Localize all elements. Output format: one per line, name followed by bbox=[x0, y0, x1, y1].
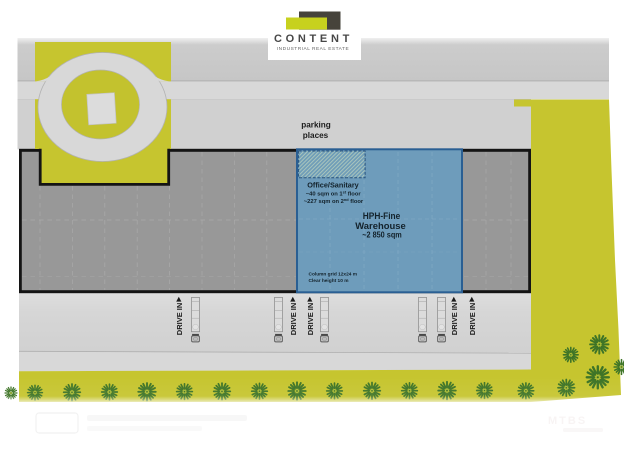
svg-text:MTBS: MTBS bbox=[548, 415, 587, 427]
svg-text:Clear height 10 m: Clear height 10 m bbox=[309, 278, 349, 284]
svg-text:DRIVE IN: DRIVE IN bbox=[175, 303, 184, 336]
svg-text:Office/Sanitary: Office/Sanitary bbox=[307, 181, 359, 190]
svg-text:CONTENT: CONTENT bbox=[274, 33, 353, 45]
svg-text:~2 850 sqm: ~2 850 sqm bbox=[362, 231, 402, 240]
svg-text:places: places bbox=[303, 131, 329, 140]
svg-text:parking: parking bbox=[301, 120, 331, 129]
svg-text:~40 sqm on 1st floor: ~40 sqm on 1st floor bbox=[306, 189, 362, 197]
svg-text:~227 sqm on 2nd floor: ~227 sqm on 2nd floor bbox=[304, 197, 364, 205]
svg-text:DRIVE IN: DRIVE IN bbox=[450, 303, 459, 336]
svg-text:DRIVE IN: DRIVE IN bbox=[289, 303, 298, 336]
svg-text:Column grid 12x24 m: Column grid 12x24 m bbox=[309, 271, 358, 277]
svg-text:DRIVE IN: DRIVE IN bbox=[468, 303, 477, 336]
svg-text:DRIVE IN: DRIVE IN bbox=[306, 303, 315, 336]
svg-text:INDUSTRIAL REAL ESTATE: INDUSTRIAL REAL ESTATE bbox=[277, 46, 349, 52]
